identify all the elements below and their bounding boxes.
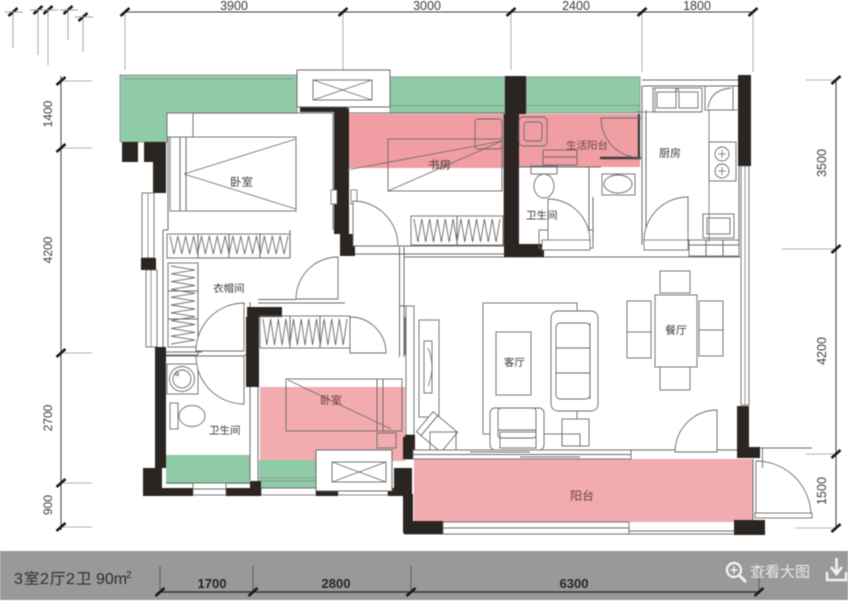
svg-text:1700: 1700 <box>198 576 227 591</box>
svg-text:3900: 3900 <box>220 0 248 13</box>
svg-text:90m: 90m <box>96 571 127 588</box>
svg-text:4200: 4200 <box>41 236 55 263</box>
svg-text:3000: 3000 <box>413 0 441 13</box>
svg-text:2800: 2800 <box>322 576 351 591</box>
svg-text:2: 2 <box>66 571 75 588</box>
svg-text:2700: 2700 <box>41 404 55 431</box>
svg-text:1500: 1500 <box>815 477 829 505</box>
svg-text:2400: 2400 <box>562 0 590 13</box>
svg-text:4200: 4200 <box>815 337 829 365</box>
svg-text:6300: 6300 <box>560 576 589 591</box>
svg-text:3: 3 <box>14 571 23 588</box>
svg-text:3500: 3500 <box>815 149 829 177</box>
svg-text:1400: 1400 <box>41 100 55 127</box>
svg-text:1800: 1800 <box>683 0 711 13</box>
svg-text:2: 2 <box>126 570 132 581</box>
svg-text:2: 2 <box>40 571 49 588</box>
svg-text:900: 900 <box>41 495 55 515</box>
